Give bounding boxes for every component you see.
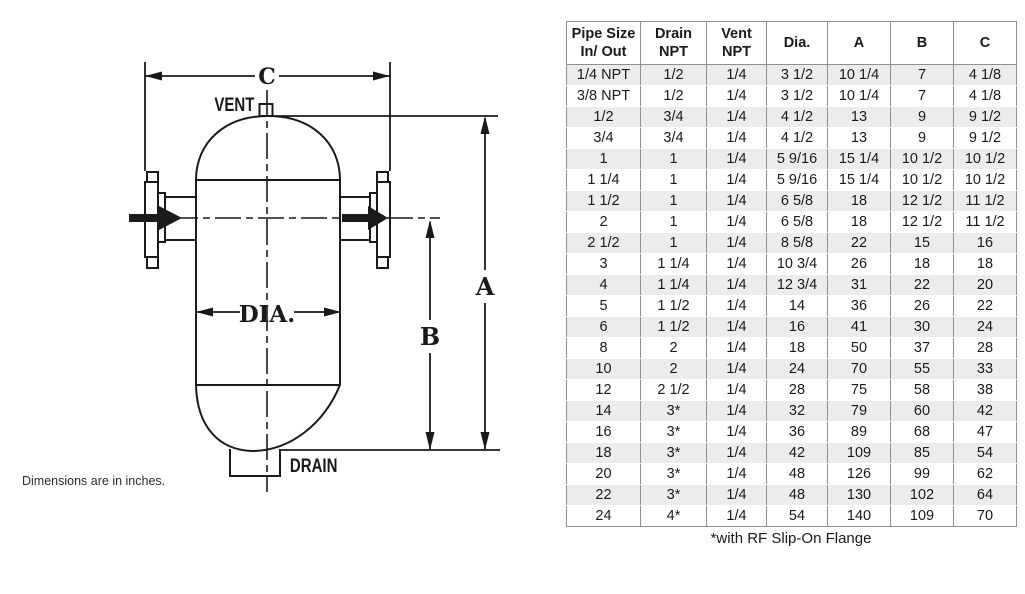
table-cell: 2 <box>641 359 707 380</box>
table-cell: 1 1/2 <box>641 296 707 317</box>
table-cell: 22 <box>828 233 891 254</box>
table-cell: 1/2 <box>567 107 641 128</box>
table-cell: 109 <box>828 443 891 464</box>
table-cell: 89 <box>828 422 891 443</box>
left-flange-bottom-tab <box>147 257 158 268</box>
table-cell: 1/4 <box>707 422 767 443</box>
table-cell: 109 <box>891 506 954 527</box>
table-cell: 18 <box>954 254 1017 275</box>
table-cell: 3 1/2 <box>767 65 828 86</box>
inlet-flow-arrow-shaft <box>129 214 159 222</box>
table-cell: 12 3/4 <box>767 275 828 296</box>
table-row: 51 1/21/414362622 <box>567 296 1017 317</box>
table-cell: 3/8 NPT <box>567 86 641 107</box>
table-cell: 1/4 <box>707 338 767 359</box>
table-cell: 22 <box>954 296 1017 317</box>
table-cell: 3* <box>641 401 707 422</box>
dim-a-arrow-up <box>481 116 490 134</box>
table-row: 821/418503728 <box>567 338 1017 359</box>
table-cell: 54 <box>767 506 828 527</box>
table-cell: 64 <box>954 485 1017 506</box>
table-cell: 70 <box>954 506 1017 527</box>
table-row: 211/46 5/81812 1/211 1/2 <box>567 212 1017 233</box>
table-cell: 16 <box>954 233 1017 254</box>
drain-nozzle <box>230 449 280 476</box>
table-cell: 1 <box>641 212 707 233</box>
table-cell: 14 <box>767 296 828 317</box>
table-cell: 10 1/2 <box>891 149 954 170</box>
table-cell: 33 <box>954 359 1017 380</box>
table-cell: 1/4 <box>707 317 767 338</box>
table-cell: 1/4 <box>707 485 767 506</box>
table-cell: 15 <box>891 233 954 254</box>
table-cell: 37 <box>891 338 954 359</box>
table-cell: 1 1/4 <box>641 275 707 296</box>
table-cell: 16 <box>567 422 641 443</box>
table-row: 1/23/41/44 1/21399 1/2 <box>567 107 1017 128</box>
left-flange-top-tab <box>147 172 158 182</box>
table-cell: 12 <box>567 380 641 401</box>
dim-dia-label: DIA. <box>239 301 296 328</box>
table-footnote: *with RF Slip-On Flange <box>566 530 1016 547</box>
table-cell: 28 <box>954 338 1017 359</box>
table-cell: 15 1/4 <box>828 170 891 191</box>
table-cell: 9 <box>891 128 954 149</box>
table-row: 111/45 9/1615 1/410 1/210 1/2 <box>567 149 1017 170</box>
header-row: Pipe SizeIn/ OutDrainNPTVentNPTDia.ABC <box>567 22 1017 65</box>
table-cell: 48 <box>767 464 828 485</box>
table-cell: 22 <box>891 275 954 296</box>
table-cell: 18 <box>767 338 828 359</box>
table-cell: 1/4 <box>707 296 767 317</box>
right-flange-bottom-tab <box>377 257 388 268</box>
vessel-bottom-head <box>196 385 340 451</box>
table-cell: 1 <box>641 233 707 254</box>
table-cell: 1 1/4 <box>641 254 707 275</box>
table-cell: 41 <box>828 317 891 338</box>
table-cell: 2 <box>641 338 707 359</box>
table-cell: 79 <box>828 401 891 422</box>
inlet-flow-arrow <box>159 206 182 230</box>
table-row: 1/4 NPT1/21/43 1/210 1/474 1/8 <box>567 65 1017 86</box>
table-cell: 31 <box>828 275 891 296</box>
table-cell: 85 <box>891 443 954 464</box>
table-cell: 1/4 <box>707 443 767 464</box>
table-cell: 9 <box>891 107 954 128</box>
table-cell: 5 9/16 <box>767 149 828 170</box>
table-cell: 1/4 <box>707 128 767 149</box>
table-cell: 1/4 <box>707 380 767 401</box>
table-cell: 6 5/8 <box>767 191 828 212</box>
table-cell: 10 1/4 <box>828 65 891 86</box>
drain-label: DRAIN <box>290 455 338 476</box>
table-cell: 126 <box>828 464 891 485</box>
table-cell: 22 <box>567 485 641 506</box>
table-cell: 3/4 <box>567 128 641 149</box>
table-cell: 3/4 <box>641 107 707 128</box>
table-row: 203*1/4481269962 <box>567 464 1017 485</box>
vent-nozzle <box>260 104 273 116</box>
table-row: 2 1/211/48 5/8221516 <box>567 233 1017 254</box>
table-cell: 10 1/4 <box>828 86 891 107</box>
dim-b-arrow-down <box>426 432 435 450</box>
table-cell: 140 <box>828 506 891 527</box>
table-cell: 130 <box>828 485 891 506</box>
column-header: B <box>891 22 954 65</box>
table-cell: 18 <box>828 212 891 233</box>
table-cell: 38 <box>954 380 1017 401</box>
table-cell: 32 <box>767 401 828 422</box>
table-cell: 1/2 <box>641 65 707 86</box>
table-cell: 3* <box>641 422 707 443</box>
table-cell: 3* <box>641 443 707 464</box>
table-cell: 36 <box>767 422 828 443</box>
table-cell: 13 <box>828 128 891 149</box>
table-cell: 2 1/2 <box>641 380 707 401</box>
table-cell: 1 1/2 <box>567 191 641 212</box>
dim-b-label: B <box>420 322 440 351</box>
table-cell: 68 <box>891 422 954 443</box>
table-cell: 11 1/2 <box>954 191 1017 212</box>
table-cell: 36 <box>828 296 891 317</box>
table-cell: 1/4 <box>707 233 767 254</box>
table-cell: 28 <box>767 380 828 401</box>
outlet-flow-arrow-shaft <box>342 214 368 222</box>
table-cell: 1/4 <box>707 191 767 212</box>
table-cell: 26 <box>891 296 954 317</box>
table-cell: 1/4 <box>707 506 767 527</box>
table-cell: 14 <box>567 401 641 422</box>
table-cell: 1/2 <box>641 86 707 107</box>
table-cell: 1 <box>641 191 707 212</box>
table-row: 122 1/21/428755838 <box>567 380 1017 401</box>
column-header: DrainNPT <box>641 22 707 65</box>
table-cell: 3 1/2 <box>767 86 828 107</box>
table-cell: 4 1/8 <box>954 65 1017 86</box>
table-row: 163*1/436896847 <box>567 422 1017 443</box>
vessel-top-head <box>196 116 340 180</box>
table-cell: 1 <box>641 170 707 191</box>
table-cell: 3* <box>641 464 707 485</box>
table-cell: 1/4 <box>707 170 767 191</box>
table-cell: 10 1/2 <box>954 149 1017 170</box>
dim-c-label: C <box>258 64 276 90</box>
table-cell: 1/4 <box>707 359 767 380</box>
table-cell: 20 <box>567 464 641 485</box>
table-cell: 75 <box>828 380 891 401</box>
table-cell: 10 <box>567 359 641 380</box>
dim-a-arrow-down <box>481 432 490 450</box>
table-cell: 55 <box>891 359 954 380</box>
column-header: A <box>828 22 891 65</box>
table-cell: 3* <box>641 485 707 506</box>
table-cell: 1 1/2 <box>641 317 707 338</box>
table-cell: 54 <box>954 443 1017 464</box>
table-cell: 9 1/2 <box>954 107 1017 128</box>
table-cell: 3 <box>567 254 641 275</box>
right-flange-top-tab <box>377 172 388 182</box>
table-cell: 4* <box>641 506 707 527</box>
table-cell: 6 5/8 <box>767 212 828 233</box>
table-cell: 47 <box>954 422 1017 443</box>
table-cell: 13 <box>828 107 891 128</box>
table-row: 1 1/411/45 9/1615 1/410 1/210 1/2 <box>567 170 1017 191</box>
table-row: 183*1/4421098554 <box>567 443 1017 464</box>
table-cell: 1 <box>567 149 641 170</box>
table-cell: 30 <box>891 317 954 338</box>
column-header: C <box>954 22 1017 65</box>
spec-table-section: Pipe SizeIn/ OutDrainNPTVentNPTDia.ABC 1… <box>566 21 1016 547</box>
page: C A B DIA. VENT DRAIN Dimensions are in … <box>0 0 1025 594</box>
table-cell: 50 <box>828 338 891 359</box>
column-header: VentNPT <box>707 22 767 65</box>
table-cell: 16 <box>767 317 828 338</box>
table-cell: 102 <box>891 485 954 506</box>
table-cell: 4 1/8 <box>954 86 1017 107</box>
table-cell: 6 <box>567 317 641 338</box>
table-cell: 1/4 <box>707 254 767 275</box>
column-header: Pipe SizeIn/ Out <box>567 22 641 65</box>
table-cell: 9 1/2 <box>954 128 1017 149</box>
table-cell: 7 <box>891 86 954 107</box>
table-cell: 4 1/2 <box>767 128 828 149</box>
table-cell: 1 1/4 <box>567 170 641 191</box>
table-cell: 24 <box>567 506 641 527</box>
table-cell: 70 <box>828 359 891 380</box>
table-cell: 4 1/2 <box>767 107 828 128</box>
table-cell: 1/4 <box>707 107 767 128</box>
table-row: 31 1/41/410 3/4261818 <box>567 254 1017 275</box>
table-row: 1 1/211/46 5/81812 1/211 1/2 <box>567 191 1017 212</box>
table-cell: 8 <box>567 338 641 359</box>
table-cell: 1 <box>641 149 707 170</box>
table-cell: 18 <box>567 443 641 464</box>
table-cell: 1/4 <box>707 86 767 107</box>
table-row: 143*1/432796042 <box>567 401 1017 422</box>
table-cell: 20 <box>954 275 1017 296</box>
table-cell: 42 <box>954 401 1017 422</box>
table-cell: 12 1/2 <box>891 212 954 233</box>
table-cell: 12 1/2 <box>891 191 954 212</box>
table-cell: 7 <box>891 65 954 86</box>
table-cell: 1/4 <box>707 65 767 86</box>
table-cell: 3/4 <box>641 128 707 149</box>
table-cell: 18 <box>891 254 954 275</box>
table-cell: 1/4 NPT <box>567 65 641 86</box>
table-cell: 5 9/16 <box>767 170 828 191</box>
table-row: 61 1/21/416413024 <box>567 317 1017 338</box>
table-cell: 26 <box>828 254 891 275</box>
table-cell: 4 <box>567 275 641 296</box>
table-cell: 42 <box>767 443 828 464</box>
table-row: 223*1/44813010264 <box>567 485 1017 506</box>
table-cell: 18 <box>828 191 891 212</box>
table-row: 244*1/45414010970 <box>567 506 1017 527</box>
dim-dia-arrow-left <box>196 308 213 317</box>
table-cell: 1/4 <box>707 401 767 422</box>
dim-b-arrow-up <box>426 220 435 238</box>
dim-dia-arrow-right <box>324 308 341 317</box>
table-cell: 24 <box>954 317 1017 338</box>
table-body: 1/4 NPT1/21/43 1/210 1/474 1/83/8 NPT1/2… <box>567 65 1017 527</box>
table-row: 41 1/41/412 3/4312220 <box>567 275 1017 296</box>
dimensions-note: Dimensions are in inches. <box>22 474 165 488</box>
table-row: 3/8 NPT1/21/43 1/210 1/474 1/8 <box>567 86 1017 107</box>
dim-a-label: A <box>475 272 495 301</box>
table-row: 1021/424705533 <box>567 359 1017 380</box>
dim-c-arrow-right <box>373 72 390 81</box>
table-cell: 11 1/2 <box>954 212 1017 233</box>
table-cell: 15 1/4 <box>828 149 891 170</box>
pipe-size-spec-table: Pipe SizeIn/ OutDrainNPTVentNPTDia.ABC 1… <box>566 21 1017 527</box>
table-cell: 8 5/8 <box>767 233 828 254</box>
column-header: Dia. <box>767 22 828 65</box>
separator-diagram: C A B DIA. VENT DRAIN Dimensions are in … <box>0 0 560 594</box>
table-cell: 10 1/2 <box>891 170 954 191</box>
table-cell: 1/4 <box>707 149 767 170</box>
table-cell: 10 3/4 <box>767 254 828 275</box>
table-cell: 1/4 <box>707 212 767 233</box>
table-cell: 1/4 <box>707 464 767 485</box>
table-cell: 99 <box>891 464 954 485</box>
table-cell: 48 <box>767 485 828 506</box>
table-cell: 58 <box>891 380 954 401</box>
table-cell: 10 1/2 <box>954 170 1017 191</box>
vent-label: VENT <box>214 94 254 115</box>
table-cell: 5 <box>567 296 641 317</box>
table-cell: 62 <box>954 464 1017 485</box>
table-header: Pipe SizeIn/ OutDrainNPTVentNPTDia.ABC <box>567 22 1017 65</box>
dim-c-arrow-left <box>145 72 162 81</box>
table-cell: 60 <box>891 401 954 422</box>
table-row: 3/43/41/44 1/21399 1/2 <box>567 128 1017 149</box>
table-cell: 2 <box>567 212 641 233</box>
table-cell: 2 1/2 <box>567 233 641 254</box>
table-cell: 1/4 <box>707 275 767 296</box>
table-cell: 24 <box>767 359 828 380</box>
